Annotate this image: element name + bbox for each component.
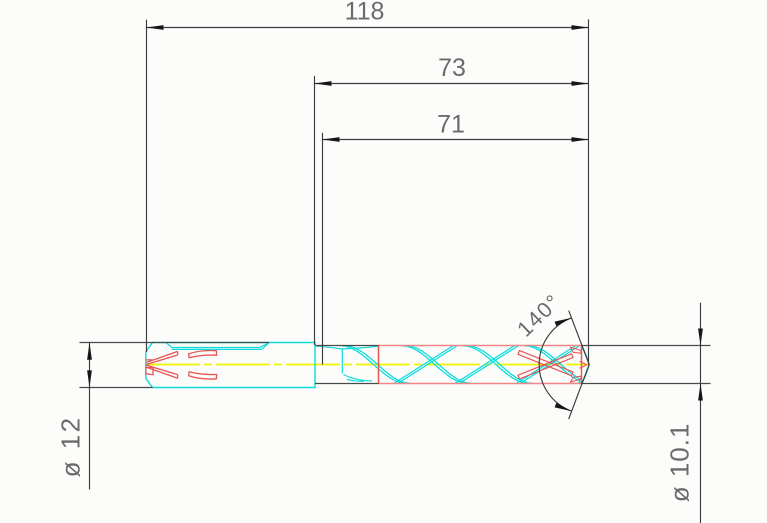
svg-text:ø 10.1: ø 10.1 — [665, 423, 695, 503]
svg-text:73: 73 — [438, 54, 466, 82]
svg-text:71: 71 — [437, 111, 465, 139]
svg-text:118: 118 — [345, 0, 385, 26]
svg-text:ø 12: ø 12 — [56, 415, 86, 477]
